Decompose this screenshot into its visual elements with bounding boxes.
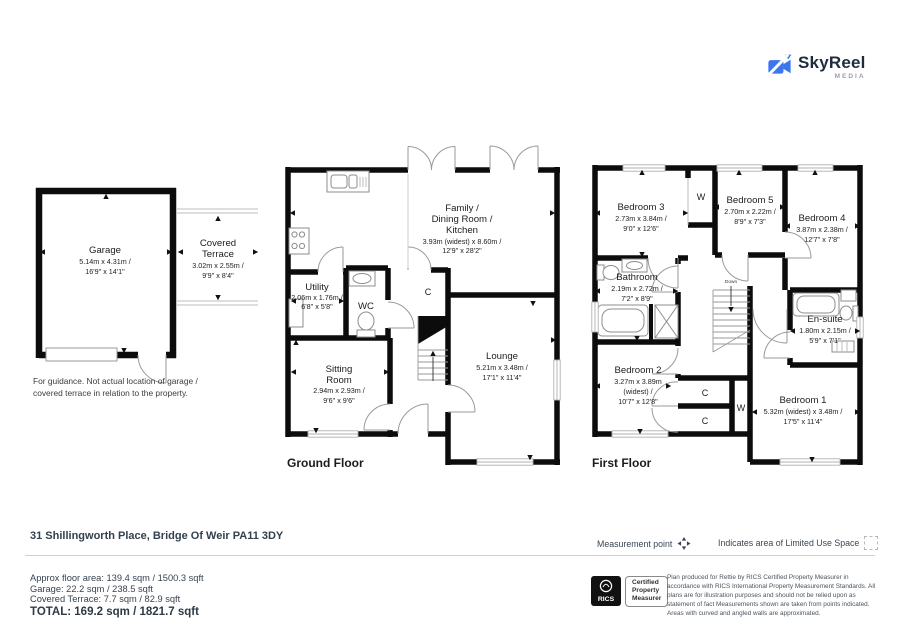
wc-label: WC (358, 301, 374, 312)
rics-logo: RICS (591, 576, 621, 606)
ensuite-dims-m: 1.80m x 2.15m / (799, 326, 851, 335)
bedroom5-dims-ft: 8'9" x 7'3" (734, 217, 766, 226)
certified-measurer-badge: Certified Property Measurer (625, 576, 668, 607)
guidance-line-1: For guidance. Not actual location of gar… (33, 375, 198, 387)
cert-line-3: Measurer (632, 595, 661, 603)
wc-toilet (358, 312, 374, 330)
rics-text: RICS (598, 596, 615, 603)
sitting-room-dims-ft: 9'6" x 9'6" (323, 396, 355, 405)
sitting-room-label-2: Room (326, 375, 352, 386)
lounge-label: Lounge (486, 351, 518, 362)
measurement-point-label: Measurement point (597, 539, 672, 549)
gf-closet-label: C (425, 287, 432, 297)
bathroom-dims-m: 2.19m x 2.72m / (611, 284, 663, 293)
ff-closet1-label: C (702, 388, 709, 398)
utility-label: Utility (305, 282, 329, 293)
bedroom3-dims-ft: 9'0" x 12'6" (623, 224, 659, 233)
rics-certification: RICS Certified Property Measurer (591, 576, 668, 607)
guidance-note: For guidance. Not actual location of gar… (33, 375, 198, 399)
lounge-dims-ft: 17'1" x 11'4" (483, 373, 522, 382)
legend-measurement-point: Measurement point (597, 536, 691, 551)
bedroom2-dims-m2: (widest) / (623, 387, 652, 396)
bedroom2-dims-m1: 3.27m x 3.89m (614, 377, 662, 386)
area-floor: Approx floor area: 139.4 sqm / 1500.3 sq… (30, 573, 204, 584)
bedroom4-dims-m: 3.87m x 2.38m / (796, 225, 848, 234)
bedroom5-dims-m: 2.70m x 2.22m / (724, 207, 776, 216)
family-room-label-1: Family / (445, 203, 479, 214)
area-garage: Garage: 22.2 sqm / 238.5 sqft (30, 584, 204, 595)
bedroom1-dims-m: 5.32m (widest) x 3.48m / (764, 407, 843, 416)
limited-use-label: Indicates area of Limited Use Space (718, 538, 859, 548)
bedroom2-label: Bedroom 2 (615, 365, 662, 376)
ground-floor-stairs (418, 316, 448, 381)
ff-closet2-label: C (702, 416, 709, 426)
first-floor-title: First Floor (592, 456, 652, 470)
disclaimer-text: Plan produced for Rettie by RICS Certifi… (667, 574, 878, 619)
area-total: TOTAL: 169.2 sqm / 1821.7 sqft (30, 607, 204, 618)
ff-wardrobe-top-label: W (697, 192, 706, 202)
ensuite-sink (841, 290, 856, 301)
terrace-label-1: Covered (200, 238, 236, 249)
garage-label: Garage (89, 245, 121, 256)
ff-wardrobe-bottom-label: W (737, 403, 746, 413)
footer-divider (25, 555, 875, 556)
bedroom3-dims-m: 2.73m x 3.84m / (615, 214, 667, 223)
ground-floor-title: Ground Floor (287, 456, 364, 470)
area-terrace: Covered Terrace: 7.7 sqm / 82.9 sqft (30, 594, 204, 605)
terrace-dims-ft: 9'9" x 8'4" (202, 271, 234, 280)
terrace-dims-m: 3.02m x 2.55m / (192, 261, 244, 270)
bedroom4-label: Bedroom 4 (799, 213, 847, 224)
stove-icon (289, 228, 309, 254)
garage-dims-m: 5.14m x 4.31m / (79, 257, 131, 266)
family-room-dims-m: 3.93m (widest) x 8.60m / (423, 237, 502, 246)
ensuite-dims-ft: 5'9" x 7'1" (809, 336, 841, 345)
garage-dims-ft: 16'9" x 14'1" (85, 267, 125, 276)
bathroom-label: Bathroom (616, 272, 658, 283)
garage-plan: Garage 5.14m x 4.31m / 16'9" x 14'1" (36, 188, 176, 383)
bedroom3-label: Bedroom 3 (618, 202, 665, 213)
guidance-line-2: covered terrace in relation to the prope… (33, 387, 198, 399)
rics-crest-icon: RICS (591, 576, 621, 606)
property-address: 31 Shillingworth Place, Bridge Of Weir P… (30, 530, 283, 542)
bedroom2-dims-ft: 10'7" x 12'8" (618, 397, 658, 406)
stairs-down-label: Down (725, 279, 738, 285)
utility-dims-ft: 6'8" x 5'8" (301, 302, 333, 311)
family-room-dims-ft: 12'9" x 28'2" (442, 246, 482, 255)
bathroom-dims-ft: 7'2" x 8'9" (621, 294, 653, 303)
family-room-label-3: Kitchen (446, 225, 478, 236)
ground-floor-fixtures (289, 171, 375, 337)
first-floor-stairs: Down (713, 279, 750, 352)
utility-dims-m: 2.06m x 1.76m / (291, 293, 343, 302)
covered-terrace-plan: Covered Terrace 3.02m x 2.55m / 9'9" x 8… (177, 209, 258, 305)
bedroom4-dims-ft: 12'7" x 7'8" (804, 235, 840, 244)
dashed-square-icon (864, 536, 878, 550)
family-room-label-2: Dining Room / (432, 214, 493, 225)
bedroom1-label: Bedroom 1 (780, 395, 827, 406)
ensuite-label: En-suite (807, 314, 842, 325)
bedroom1-dims-ft: 17'5" x 11'4" (784, 417, 823, 426)
bedroom5-label: Bedroom 5 (727, 195, 774, 206)
bathtub-icon (598, 305, 648, 336)
bathroom-sink (622, 259, 647, 272)
garage-door (46, 348, 117, 361)
legend-limited-use: Indicates area of Limited Use Space (718, 536, 878, 550)
terrace-label-2: Terrace (202, 249, 234, 260)
sitting-room-dims-m: 2.94m x 2.93m / (313, 386, 365, 395)
lounge-dims-m: 5.21m x 3.48m / (476, 363, 528, 372)
area-summary: Approx floor area: 139.4 sqm / 1500.3 sq… (30, 573, 204, 617)
sitting-room-label-1: Sitting (326, 364, 353, 375)
floorplan-drawing: Garage 5.14m x 4.31m / 16'9" x 14'1" Cov… (0, 0, 900, 520)
four-direction-arrow-icon (677, 536, 691, 551)
cert-line-1: Certified (632, 579, 661, 587)
floorplan-canvas: SkyReel MEDIA Garage 5.14m x 4.31m / 16'… (0, 0, 900, 636)
cert-line-2: Property (632, 587, 661, 595)
